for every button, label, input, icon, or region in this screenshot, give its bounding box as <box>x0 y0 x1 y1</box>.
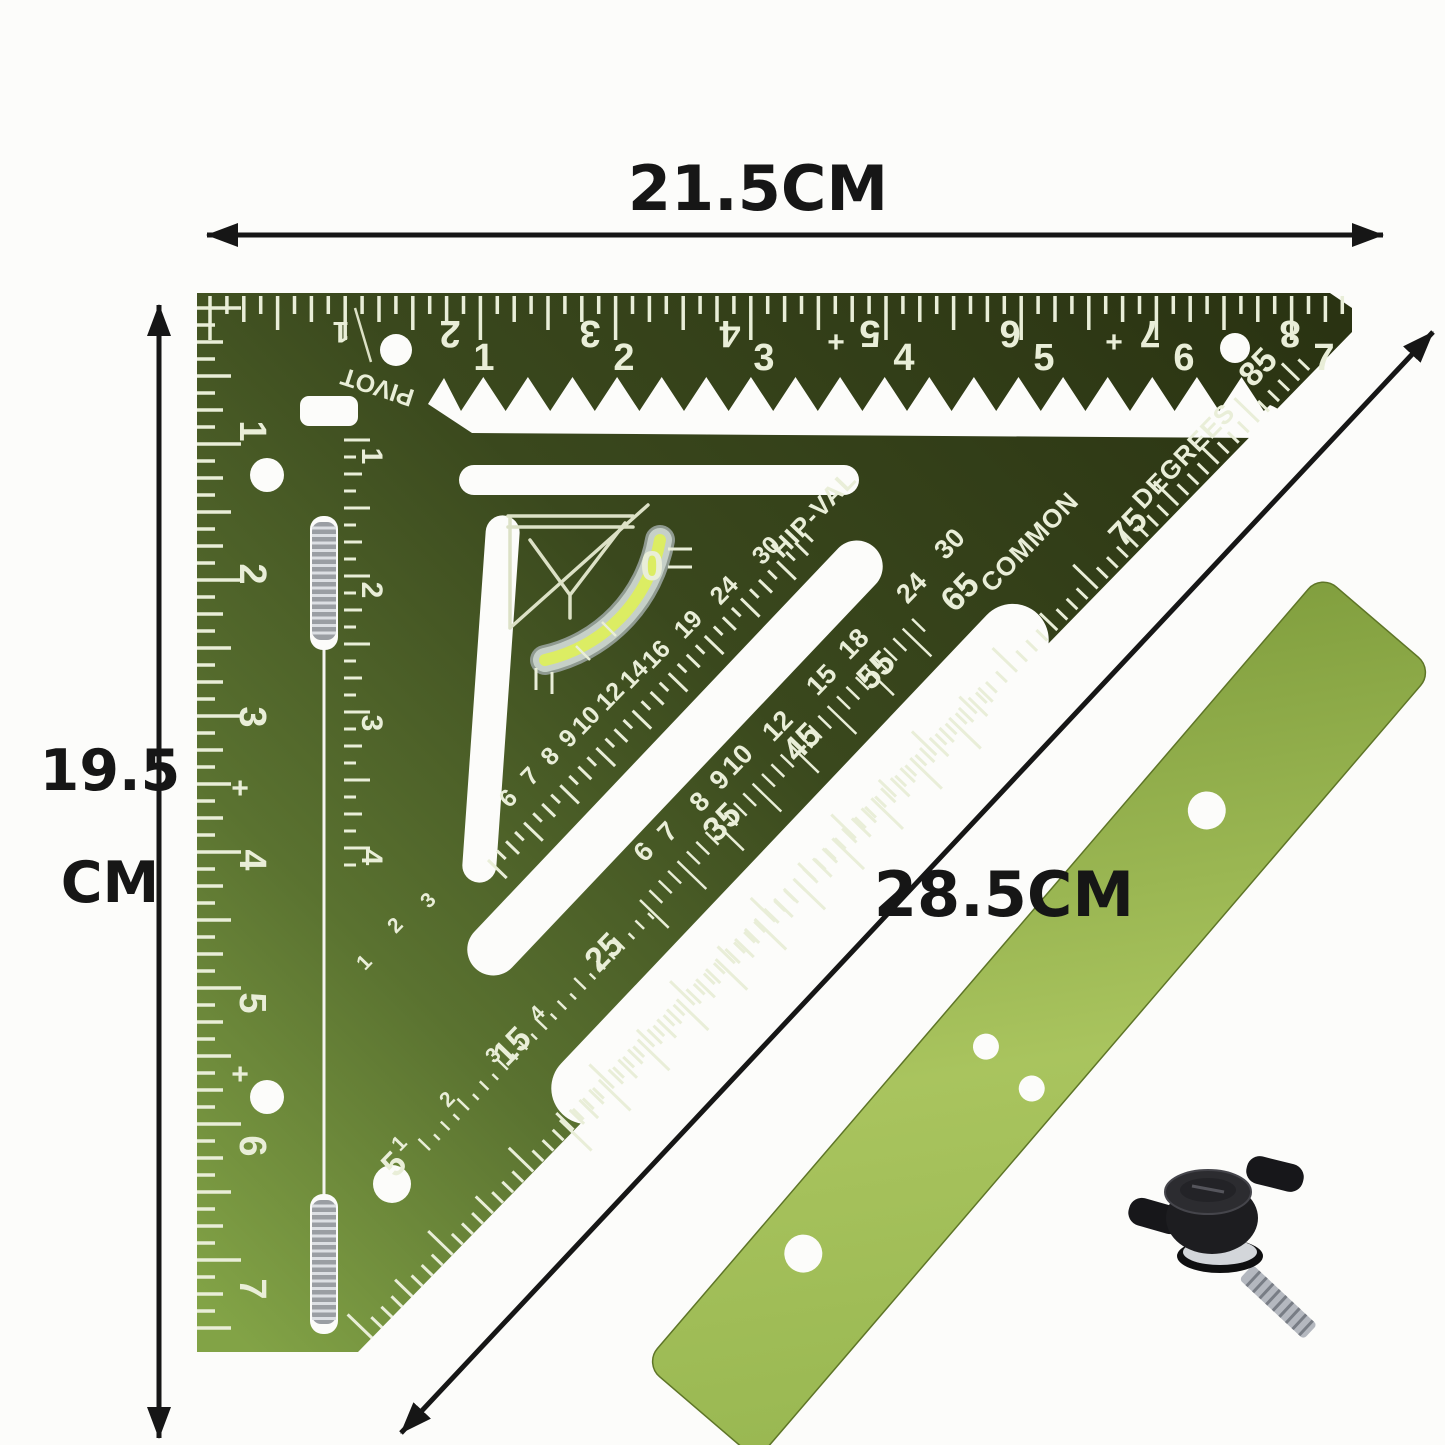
hole <box>250 1080 284 1114</box>
plus-mark: + <box>223 779 256 797</box>
width-dimension-label: 21.5CM <box>628 152 888 225</box>
scale-number: 3 <box>579 312 600 354</box>
screw-shaft <box>1239 1265 1317 1340</box>
scale-number: 6 <box>231 1135 273 1156</box>
hole <box>380 334 412 366</box>
scale-number: 1 <box>355 448 388 465</box>
spring-coil-lower <box>312 1200 336 1324</box>
plus-mark: + <box>827 326 845 359</box>
horizontal-slot <box>459 465 859 495</box>
scale-number: 2 <box>613 337 634 379</box>
scale-number: 3 <box>355 715 388 732</box>
scale-number: 5 <box>231 992 273 1013</box>
scale-number: 4 <box>355 849 388 866</box>
scale-number: 3 <box>231 706 273 727</box>
scale-number: 5 <box>1033 337 1054 379</box>
scale-number: 1 <box>231 420 273 441</box>
scene: PIVOT 1 1 2 3 4 5 6 7 2 3 4 5 6 7 8 + + … <box>0 0 1445 1445</box>
scale-number: 7 <box>231 1278 273 1299</box>
scale-number: 7 <box>1313 337 1334 379</box>
height-dimension-line1: 19.5 <box>40 738 181 804</box>
plus-mark: + <box>223 1065 256 1083</box>
plus-mark: + <box>1105 326 1123 359</box>
scale-number: 2 <box>231 563 273 584</box>
hypotenuse-dimension-label: 28.5CM <box>874 858 1134 931</box>
scale-number: 6 <box>1173 337 1194 379</box>
thumb-screw <box>1125 1153 1317 1339</box>
pivot-notch <box>300 396 358 426</box>
scale-number: 2 <box>439 312 460 354</box>
scale-number: 7 <box>1139 312 1160 354</box>
scale-number: 1 <box>473 337 494 379</box>
scale-number: 4 <box>893 337 914 379</box>
scale-number: 6 <box>999 312 1020 354</box>
scale-number: 5 <box>859 312 880 354</box>
height-dimension-line2: CM <box>61 850 160 916</box>
scale-number: 2 <box>355 582 388 599</box>
scale-number: 4 <box>231 849 273 870</box>
scale-number: 8 <box>1279 312 1300 354</box>
knob-wing-right <box>1243 1153 1306 1194</box>
product-photo: PIVOT 1 1 2 3 4 5 6 7 2 3 4 5 6 7 8 + + … <box>0 0 1445 1445</box>
hole <box>250 458 284 492</box>
pivot-number: 1 <box>333 315 350 348</box>
scale-number: 4 <box>719 312 740 354</box>
scale-number: 3 <box>753 337 774 379</box>
spring-coil-stripes <box>312 528 336 633</box>
vial-zero: 0 <box>640 542 663 589</box>
